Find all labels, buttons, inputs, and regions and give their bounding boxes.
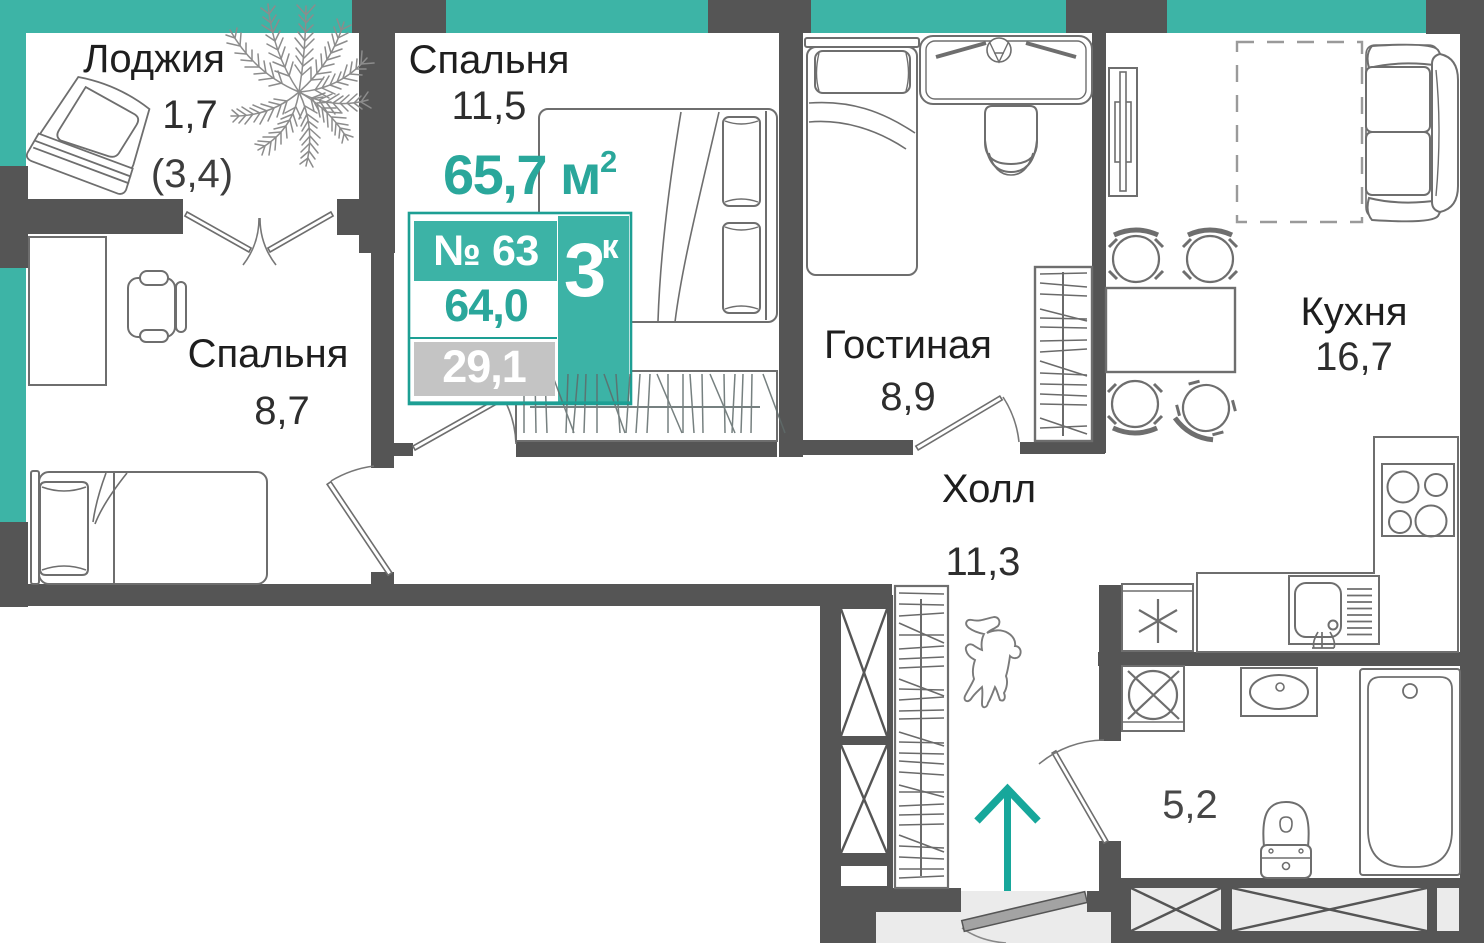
svg-text:5,2: 5,2: [1162, 783, 1218, 827]
svg-text:65,7 м2: 65,7 м2: [443, 143, 616, 206]
svg-text:Кухня: Кухня: [1300, 290, 1407, 334]
svg-text:Гостиная: Гостиная: [824, 323, 992, 367]
svg-text:Лоджия: Лоджия: [83, 37, 225, 81]
svg-text:1,7: 1,7: [162, 93, 218, 137]
svg-text:11,5: 11,5: [452, 84, 527, 128]
svg-text:к: к: [601, 228, 619, 266]
svg-text:8,7: 8,7: [254, 389, 310, 433]
svg-text:Спальня: Спальня: [409, 38, 570, 82]
svg-text:3: 3: [564, 228, 606, 313]
svg-text:Спальня: Спальня: [188, 332, 349, 376]
svg-text:29,1: 29,1: [442, 341, 526, 392]
svg-text:64,0: 64,0: [444, 280, 528, 331]
svg-text:8,9: 8,9: [880, 375, 936, 419]
svg-text:(3,4): (3,4): [151, 152, 233, 196]
svg-text:11,3: 11,3: [946, 540, 1021, 584]
svg-text:№ 63: № 63: [433, 227, 539, 275]
svg-text:Холл: Холл: [942, 467, 1036, 511]
svg-text:16,7: 16,7: [1315, 335, 1393, 379]
